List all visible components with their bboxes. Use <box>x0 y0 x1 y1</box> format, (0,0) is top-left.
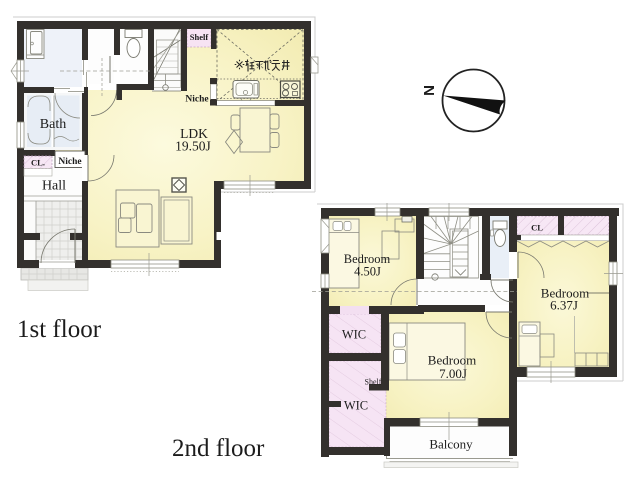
svg-text:2nd floor: 2nd floor <box>172 435 265 462</box>
svg-text:6.37J: 6.37J <box>550 298 578 313</box>
svg-text:CL.: CL. <box>31 158 45 168</box>
svg-text:Bath: Bath <box>40 117 66 132</box>
svg-text:Niche: Niche <box>185 95 208 105</box>
svg-text:Balcony: Balcony <box>429 437 473 452</box>
svg-text:4.50J: 4.50J <box>354 265 381 279</box>
svg-text:CL: CL <box>531 223 543 233</box>
svg-text:7.00J: 7.00J <box>439 366 467 381</box>
svg-text:19.50J: 19.50J <box>175 139 211 154</box>
svg-text:Hall: Hall <box>42 179 66 194</box>
svg-text:WIC: WIC <box>344 399 368 413</box>
svg-text:N: N <box>421 85 438 96</box>
svg-text:1st floor: 1st floor <box>17 316 102 343</box>
svg-text:Shelf: Shelf <box>365 378 382 387</box>
svg-text:WIC: WIC <box>342 328 366 342</box>
svg-text:Shelf: Shelf <box>190 32 209 42</box>
svg-text:Niche: Niche <box>58 157 81 167</box>
